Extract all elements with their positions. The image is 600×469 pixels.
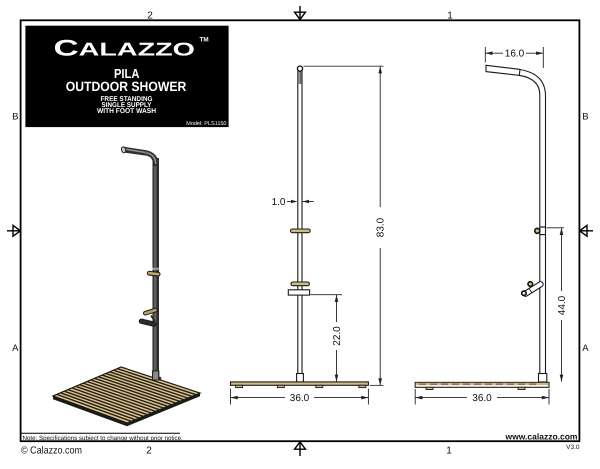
svg-text:CALAZZO: CALAZZO <box>54 36 196 61</box>
svg-text:2: 2 <box>146 446 152 457</box>
svg-text:44.0: 44.0 <box>557 295 568 315</box>
svg-text:A: A <box>582 343 589 354</box>
svg-text:1: 1 <box>446 446 452 457</box>
svg-text:TM: TM <box>200 37 209 44</box>
svg-text:22.0: 22.0 <box>332 326 343 346</box>
svg-text:OUTDOOR SHOWER: OUTDOOR SHOWER <box>66 79 187 94</box>
svg-text:A: A <box>12 343 19 354</box>
svg-text:© Calazzo.com: © Calazzo.com <box>21 446 82 457</box>
svg-text:83.0: 83.0 <box>376 217 387 237</box>
svg-text:Model: PLS1150: Model: PLS1150 <box>186 121 226 127</box>
svg-text:B: B <box>582 111 588 122</box>
svg-text:1: 1 <box>447 10 453 21</box>
svg-text:16.0: 16.0 <box>505 49 525 60</box>
svg-text:www.calazzo.com: www.calazzo.com <box>505 432 578 442</box>
svg-text:Note: Specifications subject t: Note: Specifications subject to change w… <box>23 435 184 442</box>
svg-text:1.0: 1.0 <box>272 197 286 208</box>
svg-text:V3.0: V3.0 <box>566 444 580 451</box>
svg-text:36.0: 36.0 <box>290 393 310 404</box>
svg-text:2: 2 <box>147 10 153 21</box>
svg-text:WITH FOOT WASH: WITH FOOT WASH <box>97 108 156 115</box>
svg-text:B: B <box>12 111 18 122</box>
svg-text:36.0: 36.0 <box>472 393 492 404</box>
